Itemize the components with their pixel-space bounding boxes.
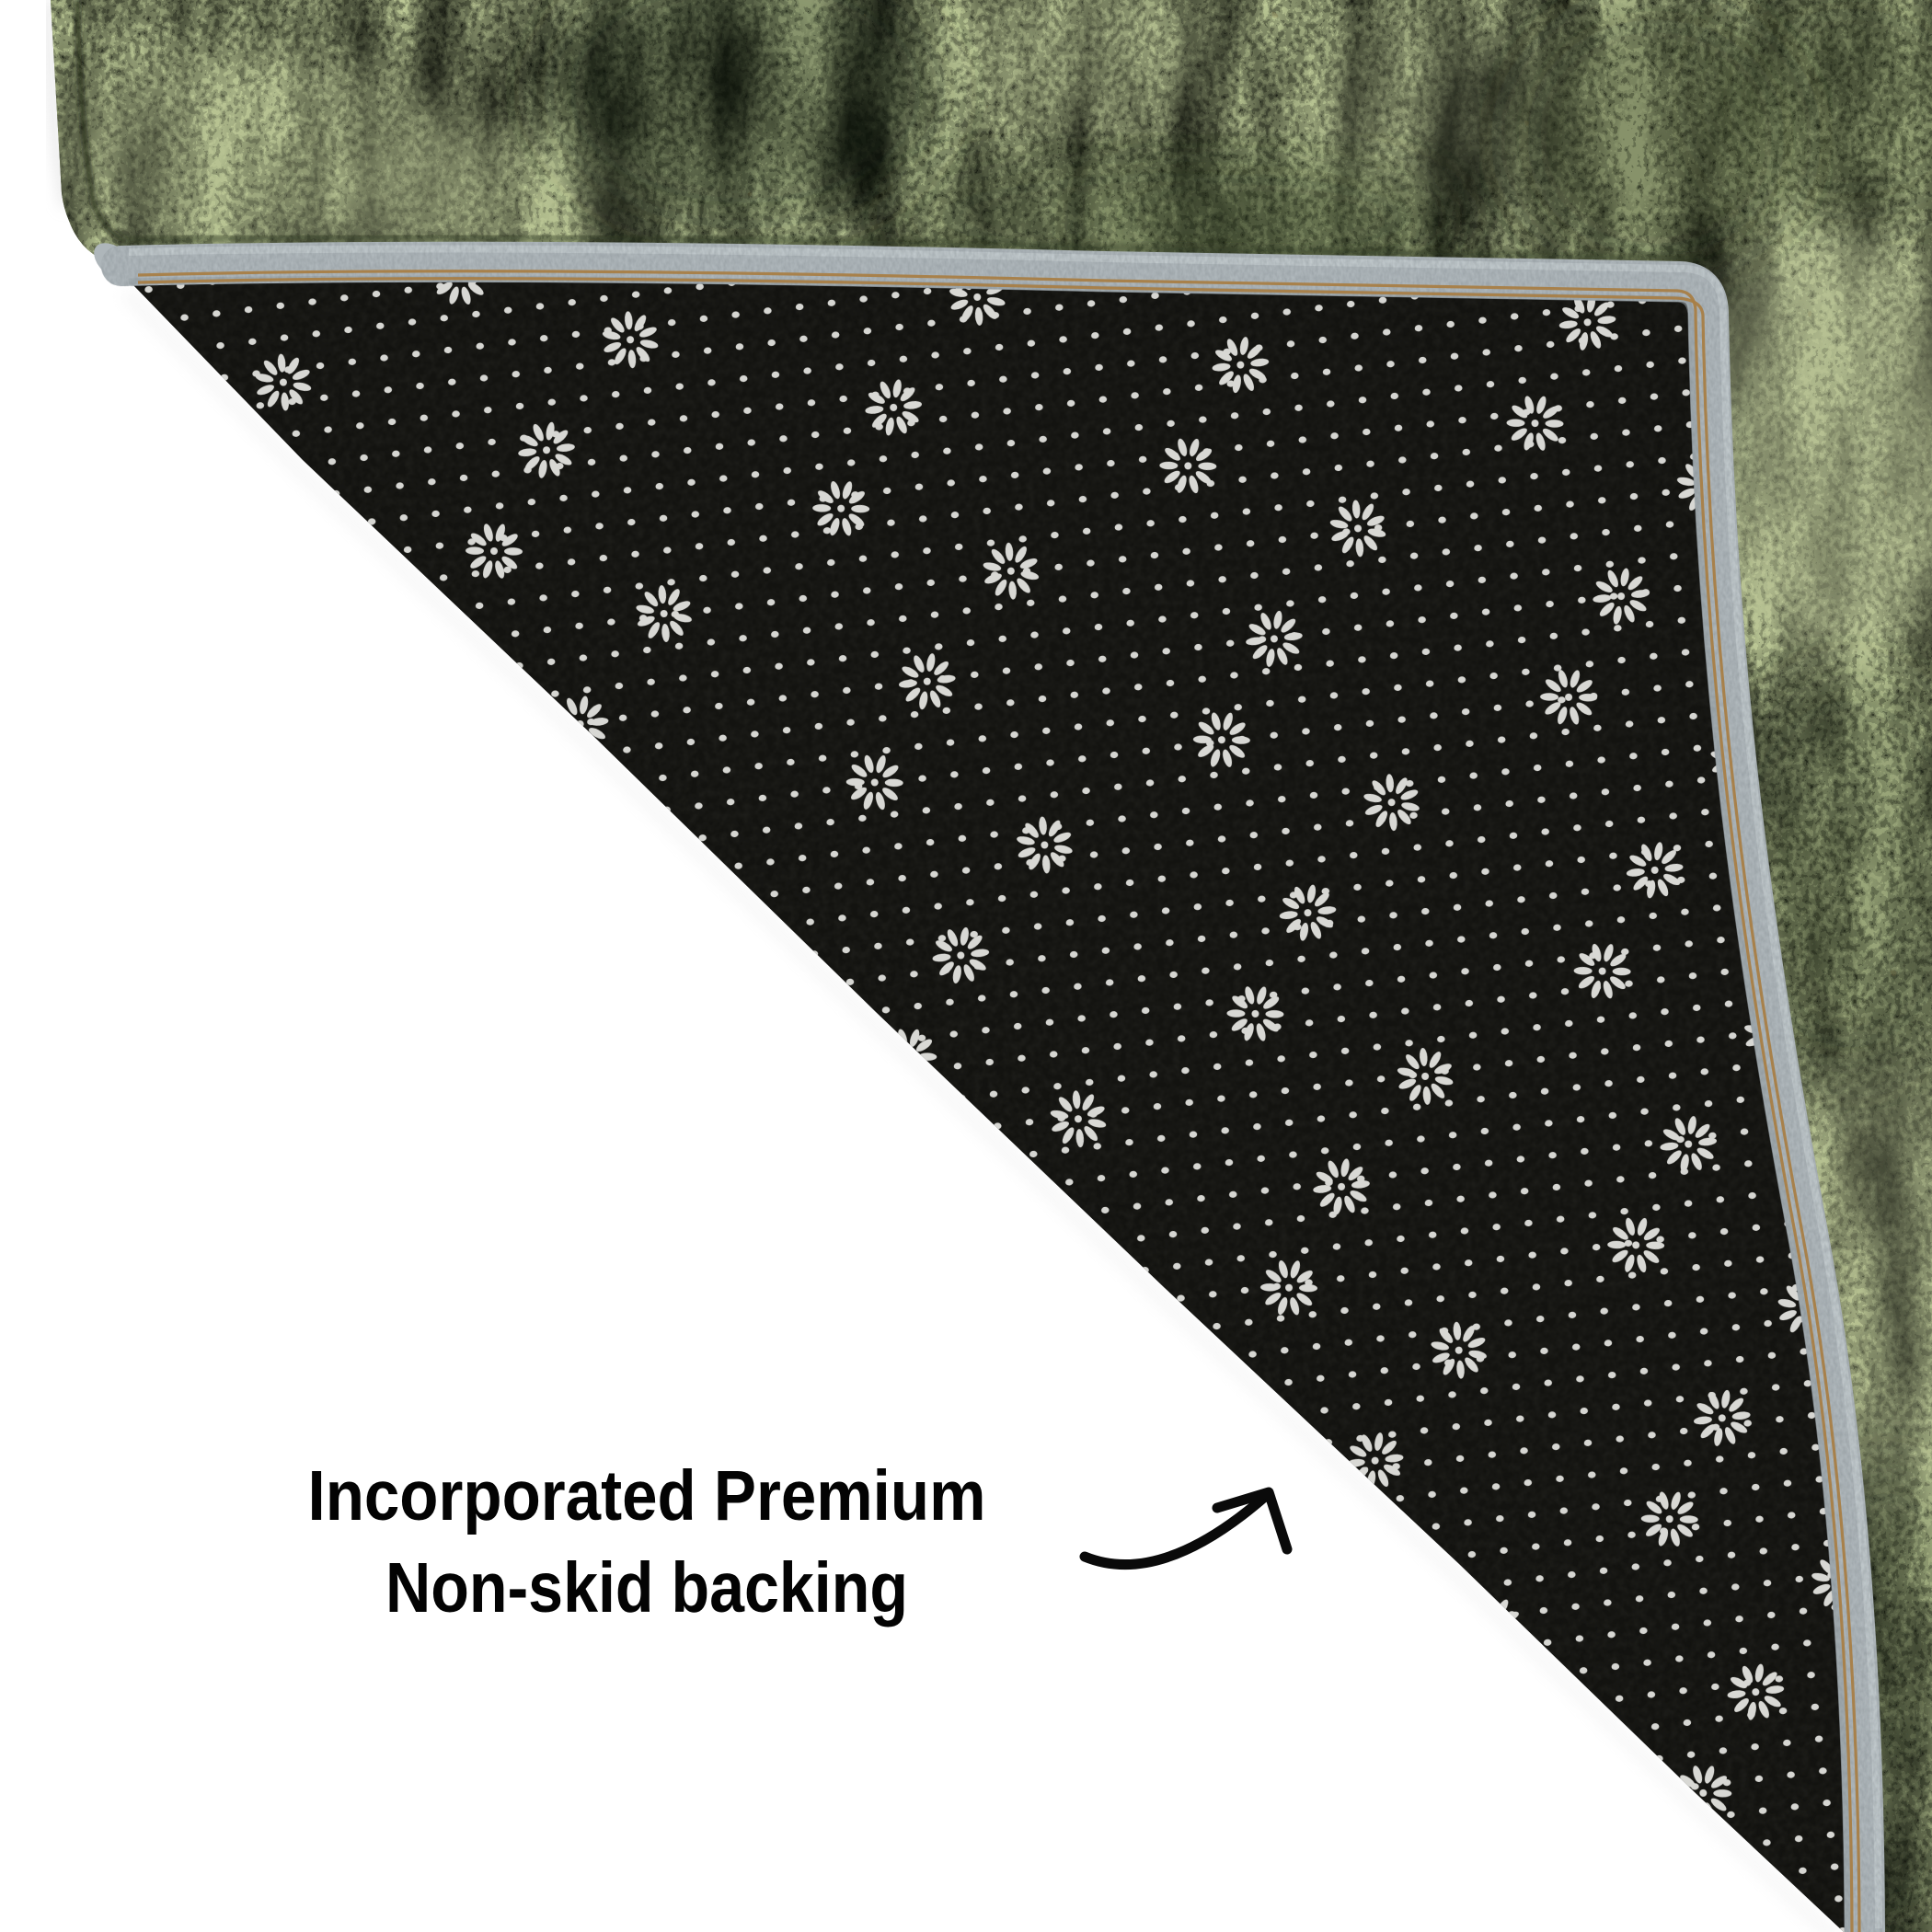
svg-text:Non-skid backing: Non-skid backing [385,1548,908,1627]
svg-text:Incorporated Premium: Incorporated Premium [308,1456,986,1535]
